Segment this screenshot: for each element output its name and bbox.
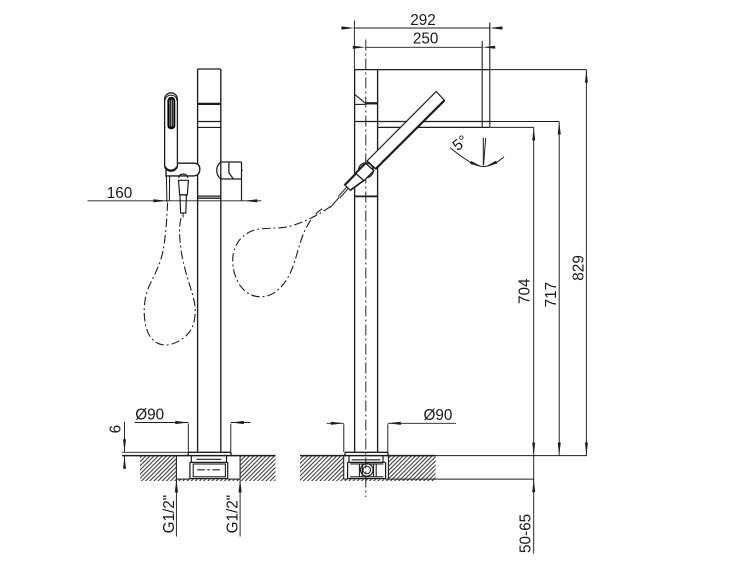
svg-text:704: 704 xyxy=(516,278,533,304)
svg-text:G1/2": G1/2" xyxy=(225,495,242,534)
svg-text:Ø90: Ø90 xyxy=(424,407,453,424)
svg-text:717: 717 xyxy=(543,282,560,308)
svg-text:50-65: 50-65 xyxy=(517,514,534,553)
svg-text:250: 250 xyxy=(413,30,439,47)
svg-text:829: 829 xyxy=(570,255,587,281)
svg-text:G1/2": G1/2" xyxy=(161,495,178,534)
svg-text:160: 160 xyxy=(107,185,133,202)
svg-text:292: 292 xyxy=(410,12,436,29)
svg-text:6: 6 xyxy=(107,425,124,434)
svg-text:Ø90: Ø90 xyxy=(135,406,164,423)
